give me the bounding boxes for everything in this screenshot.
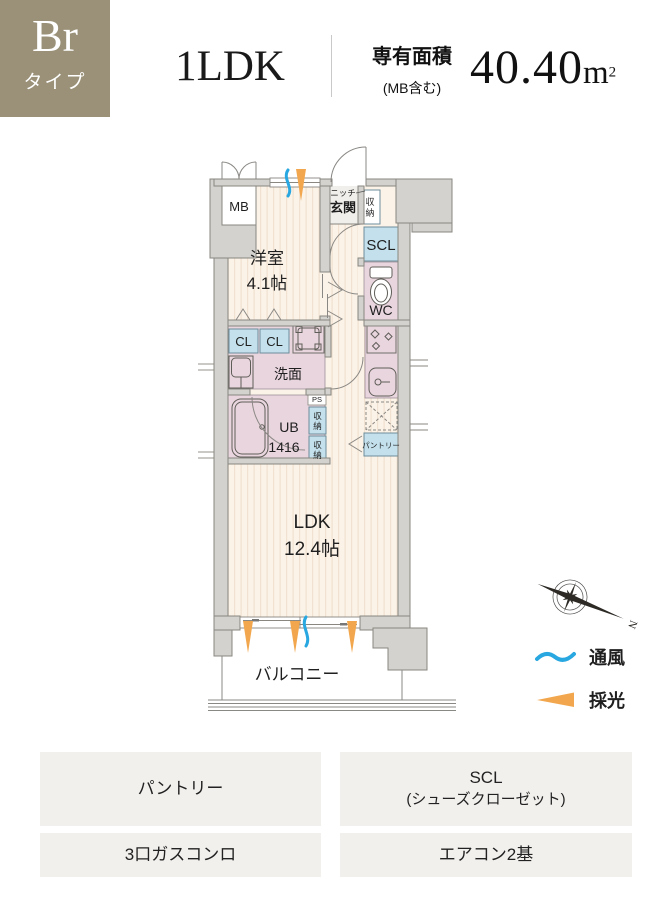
layout-name: 1LDK — [140, 42, 320, 91]
window-handle-1 — [252, 619, 259, 622]
corridor-floor — [331, 320, 365, 464]
label-western-room: 洋室 — [250, 249, 284, 268]
area-unit: m — [583, 55, 609, 91]
daylight-legend-label: 採光 — [589, 690, 625, 711]
plan-legend: 通風 採光 — [537, 648, 625, 711]
feature-stove-label: 3口ガスコンロ — [125, 844, 236, 867]
label-cl-1: CL — [235, 334, 252, 349]
type-suffix: タイプ — [0, 67, 110, 94]
mb-door-arc-right — [239, 162, 256, 179]
mb-door-arc-left — [222, 162, 239, 179]
kitchen-counter — [365, 324, 398, 398]
compass-north-label: N — [625, 618, 639, 630]
daylight-arrow-balcony-3 — [347, 621, 357, 653]
window-handle-2 — [340, 623, 347, 626]
entrance-door-arc — [331, 147, 366, 182]
area-exponent: 2 — [609, 65, 617, 81]
feature-stove: 3口ガスコンロ — [40, 833, 321, 877]
label-wc: WC — [369, 302, 392, 318]
feature-scl: SCL (シューズクローゼット) — [340, 752, 632, 826]
ventilation-legend-icon — [537, 654, 574, 660]
feature-pantry: パントリー — [40, 752, 321, 826]
daylight-arrow-balcony-1 — [243, 621, 253, 653]
floor-plan-page: Br タイプ 1LDK 専有面積 (MB含む) 40.40m2 — [0, 0, 670, 910]
daylight-legend-icon — [537, 693, 574, 708]
area-note: (MB含む) — [352, 78, 472, 98]
compass-icon: N — [531, 568, 645, 640]
header-divider — [331, 35, 332, 97]
label-ldk-size: 12.4帖 — [284, 538, 340, 560]
area-block: 専有面積 (MB含む) — [352, 40, 472, 98]
balcony-right-block — [373, 628, 427, 670]
area-number: 40.40 — [470, 41, 583, 94]
toilet-icon — [370, 267, 392, 305]
hall-floor — [330, 224, 358, 320]
area-value: 40.40m2 — [470, 40, 616, 95]
label-storage1-char2: 納 — [313, 421, 322, 431]
feature-aircon-label: エアコン2基 — [439, 844, 533, 867]
type-badge: Br タイプ — [0, 0, 110, 117]
label-washroom: 洗面 — [274, 366, 302, 382]
top-right-core — [396, 179, 452, 223]
label-scl: SCL — [366, 237, 395, 254]
feature-scl-line1: SCL — [469, 767, 502, 790]
label-ub: UB — [279, 419, 298, 435]
feature-table: パントリー SCL (シューズクローゼット) 3口ガスコンロ エアコン2基 — [40, 752, 632, 877]
label-storage2-char1: 収 — [313, 440, 322, 450]
label-balcony: バルコニー — [255, 665, 340, 684]
balcony-left-pier — [214, 630, 232, 656]
label-western-size: 4.1帖 — [247, 274, 288, 293]
label-niche: ニッチ — [330, 188, 356, 198]
compass-needle — [536, 581, 624, 621]
label-cl-2: CL — [266, 334, 283, 349]
daylight-arrow-balcony-2 — [290, 621, 300, 653]
label-ub-size: 1416 — [268, 439, 299, 455]
label-entrance: 玄関 — [330, 200, 356, 215]
feature-pantry-label: パントリー — [138, 778, 224, 801]
label-pantry: パントリー — [362, 441, 400, 450]
right-wall — [398, 223, 410, 622]
type-code: Br — [0, 13, 110, 59]
ventilation-legend-label: 通風 — [589, 648, 625, 668]
area-title: 専有面積 — [352, 40, 472, 69]
label-storage2-char2: 納 — [313, 450, 322, 460]
left-wall — [214, 258, 228, 622]
feature-aircon: エアコン2基 — [340, 833, 632, 877]
label-ldk: LDK — [294, 512, 331, 533]
label-entrance-storage-2: 納 — [365, 207, 374, 218]
label-storage1-char1: 収 — [313, 411, 322, 421]
label-mb: MB — [229, 199, 249, 214]
floor-plan-drawing: MB ニッチ 玄関 収 納 SCL WC 洋室 4.1帖 CL CL 洗面 UB… — [0, 130, 670, 730]
feature-scl-line2: (シューズクローゼット) — [406, 790, 565, 810]
label-ps: PS — [312, 395, 322, 404]
label-entrance-storage-1: 収 — [365, 196, 374, 207]
